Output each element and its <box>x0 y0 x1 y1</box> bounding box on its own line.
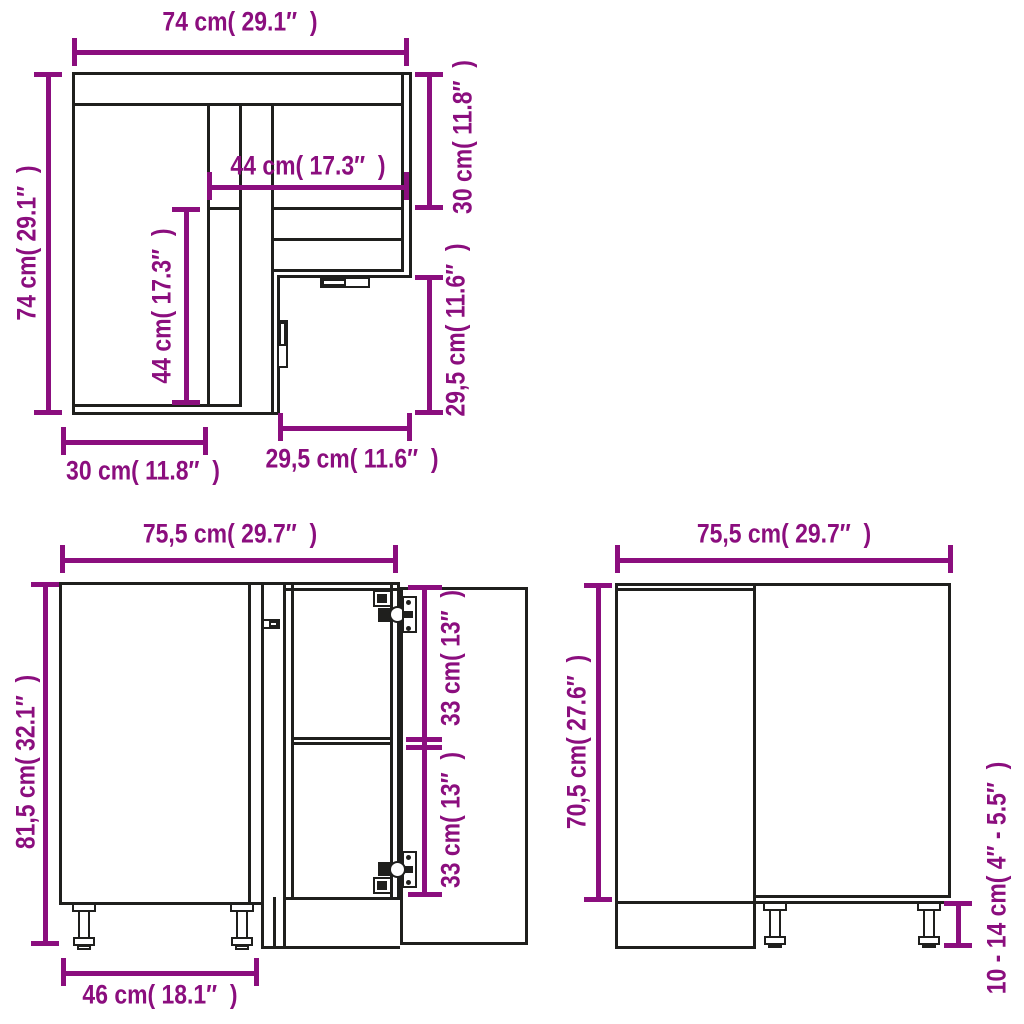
side-view: 75,5 cm( 29.7″ ) 70,5 cm( 27.6″ ) 10 - 1… <box>0 0 1024 1024</box>
dim-side-leg-height: 10 - 14 cm( 4″ - 5.5″ ) <box>0 0 1024 1024</box>
dim-side-leg-height-label: 10 - 14 cm( 4″ - 5.5″ ) <box>984 762 1011 994</box>
diagram-canvas: 74 cm( 29.1″ ) 74 cm( 29.1″ ) 44 cm( 17.… <box>0 0 1024 1024</box>
